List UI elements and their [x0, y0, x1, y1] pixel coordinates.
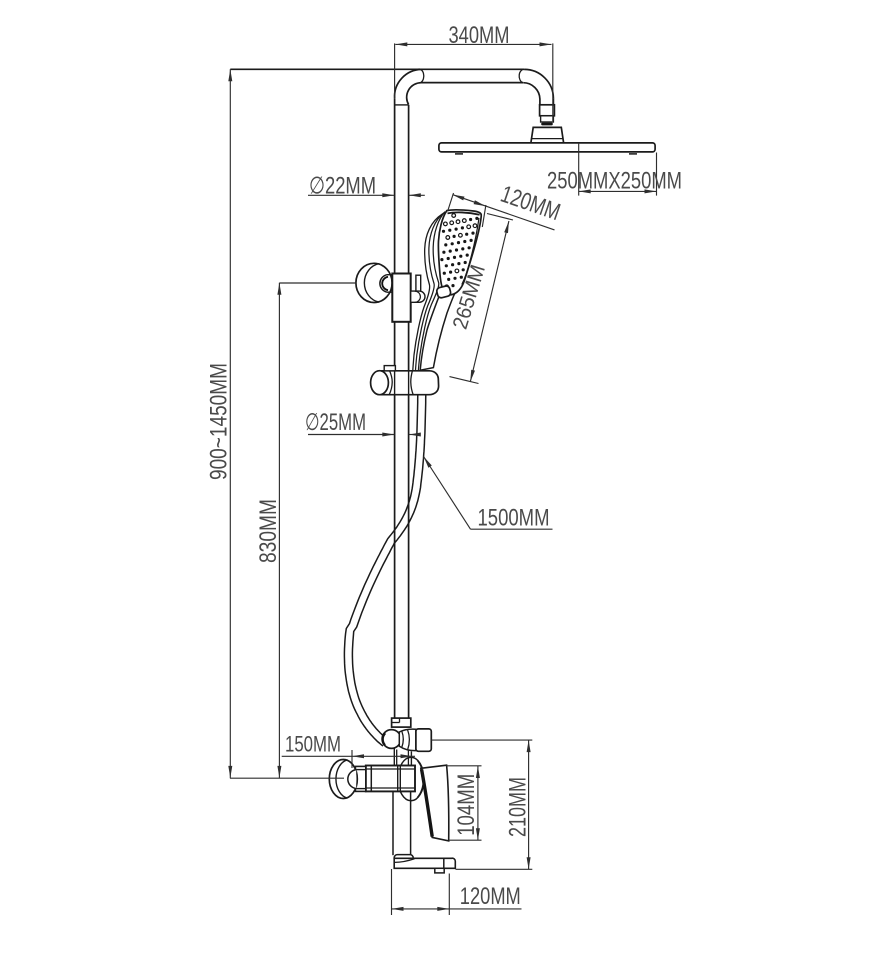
- svg-text:210MM: 210MM: [504, 777, 531, 837]
- svg-text:250MMX250MM: 250MMX250MM: [547, 168, 682, 195]
- svg-text:104MM: 104MM: [453, 774, 480, 836]
- svg-text:830MM: 830MM: [255, 499, 282, 563]
- svg-text:∅22MM: ∅22MM: [309, 172, 376, 199]
- svg-text:340MM: 340MM: [449, 22, 510, 49]
- svg-text:1500MM: 1500MM: [478, 505, 550, 532]
- svg-text:150MM: 150MM: [285, 732, 341, 757]
- svg-text:∅25MM: ∅25MM: [305, 409, 366, 436]
- svg-text:120MM: 120MM: [460, 883, 521, 910]
- svg-text:900~1450MM: 900~1450MM: [206, 363, 233, 480]
